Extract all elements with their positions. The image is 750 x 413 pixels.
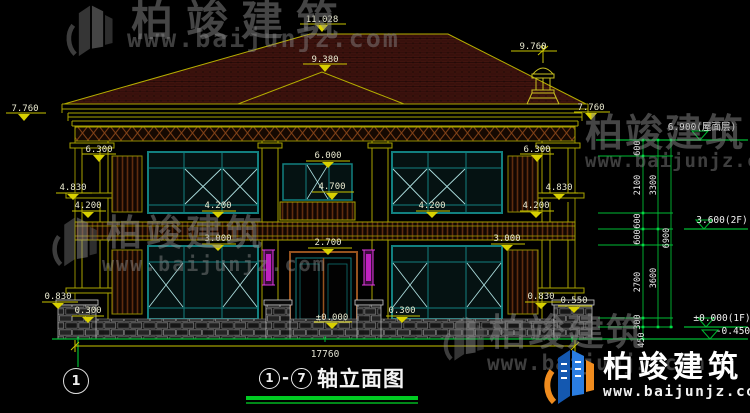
dim-sill-2f-inner-left: 4.200 — [202, 201, 236, 218]
svg-text:0.830: 0.830 — [527, 292, 554, 302]
window-1f-left — [148, 246, 258, 319]
chain-col2-0: 3300 — [649, 175, 659, 195]
axis-circle-end: 7 — [291, 368, 312, 389]
dim-eave-left: 7.760 — [6, 104, 46, 121]
dim-apex: 11.028 — [300, 15, 346, 32]
svg-text:4.200: 4.200 — [74, 201, 101, 211]
svg-text:4.200: 4.200 — [522, 201, 549, 211]
svg-text:0.550: 0.550 — [560, 296, 587, 306]
center-spandrel — [280, 202, 355, 220]
svg-text:6.900(屋面层): 6.900(屋面层) — [668, 122, 737, 133]
dim-sill-2f-outer-right: 4.200 — [520, 201, 554, 218]
level-markers: 6.900(屋面层) 3.600(2F) ±0.000(1F) -0.450 — [668, 122, 750, 339]
svg-text:±0.000: ±0.000 — [316, 313, 349, 323]
svg-text:3.600(2F): 3.600(2F) — [696, 215, 747, 226]
dim-sill-2f-outer-left: 4.200 — [72, 201, 106, 218]
svg-text:6.300: 6.300 — [85, 145, 112, 155]
axis-bubble-1: 1 — [63, 368, 89, 394]
brand-logo: 柏竣建筑 www.baijunjz.com — [544, 344, 750, 406]
chain-col1-0: 600 — [633, 140, 643, 155]
svg-text:0.300: 0.300 — [74, 306, 101, 316]
chain-col1-4: 2700 — [633, 272, 643, 292]
chain-col1-2: 600 — [633, 213, 643, 228]
chain-col3: 6900 — [662, 228, 672, 248]
svg-text:6.300: 6.300 — [523, 145, 550, 155]
frieze-lattice-band — [75, 127, 575, 141]
cad-elevation-screenshot: { "title_block": { "axis_start": "1", "s… — [0, 0, 750, 413]
title-text: 轴立面图 — [317, 363, 405, 393]
svg-text:7.760: 7.760 — [11, 104, 38, 114]
brand-logo-icon — [544, 344, 598, 406]
title-underline-thin — [246, 402, 418, 404]
svg-text:0.830: 0.830 — [44, 292, 71, 302]
svg-text:3.000: 3.000 — [493, 234, 520, 244]
svg-text:-0.450: -0.450 — [716, 326, 750, 337]
level-floor1: ±0.000(1F) — [693, 313, 750, 327]
eave-cornice — [62, 104, 588, 126]
chain-col1-3: 600 — [633, 229, 643, 244]
svg-text:0.300: 0.300 — [388, 306, 415, 316]
dim-sill-2f-inner-right: 4.200 — [416, 201, 450, 218]
title-underline — [246, 396, 418, 400]
dim-frieze-left: 6.300 — [82, 145, 116, 162]
dim-overall-width: 17760 — [71, 340, 579, 360]
chain-labels: 600 2100 600 600 2700 300 450 3300 3600 … — [633, 140, 672, 347]
right-dimension-chain: 600 2100 600 600 2700 300 450 3300 3600 … — [596, 122, 750, 348]
svg-text:11.028: 11.028 — [306, 15, 339, 25]
svg-text:±0.000(1F): ±0.000(1F) — [693, 313, 750, 324]
window-2f-right — [392, 152, 502, 213]
svg-text:6.000: 6.000 — [314, 151, 341, 161]
chain-col1-5: 300 — [633, 314, 643, 329]
level-foundation: -0.450 — [702, 326, 750, 339]
svg-text:17760: 17760 — [311, 349, 340, 360]
svg-text:4.830: 4.830 — [59, 183, 86, 193]
title-separator: - — [282, 368, 289, 388]
svg-text:4.200: 4.200 — [418, 201, 445, 211]
drawing-title: 1 - 7 轴立面图 — [246, 363, 418, 404]
brand-name: 柏竣建筑 — [603, 351, 750, 384]
window-2f-left — [148, 152, 258, 213]
svg-text:4.200: 4.200 — [204, 201, 231, 211]
level-roof: 6.900(屋面层) — [668, 122, 737, 140]
svg-text:4.700: 4.700 — [318, 182, 345, 192]
svg-text:7.760: 7.760 — [577, 103, 604, 113]
axis-circle-start: 1 — [259, 368, 280, 389]
svg-text:2.700: 2.700 — [314, 238, 341, 248]
svg-text:4.830: 4.830 — [545, 183, 572, 193]
svg-text:9.380: 9.380 — [311, 55, 338, 65]
dim-finial: 9.760 — [511, 42, 557, 61]
brand-url: www.baijunjz.com — [603, 384, 750, 400]
level-floor2: 3.600(2F) — [696, 215, 748, 229]
svg-text:3.000: 3.000 — [204, 234, 231, 244]
chain-col2-1: 3600 — [649, 268, 659, 288]
svg-text:9.760: 9.760 — [519, 42, 546, 52]
chain-lines — [596, 140, 748, 339]
chain-col1-1: 2100 — [633, 175, 643, 195]
